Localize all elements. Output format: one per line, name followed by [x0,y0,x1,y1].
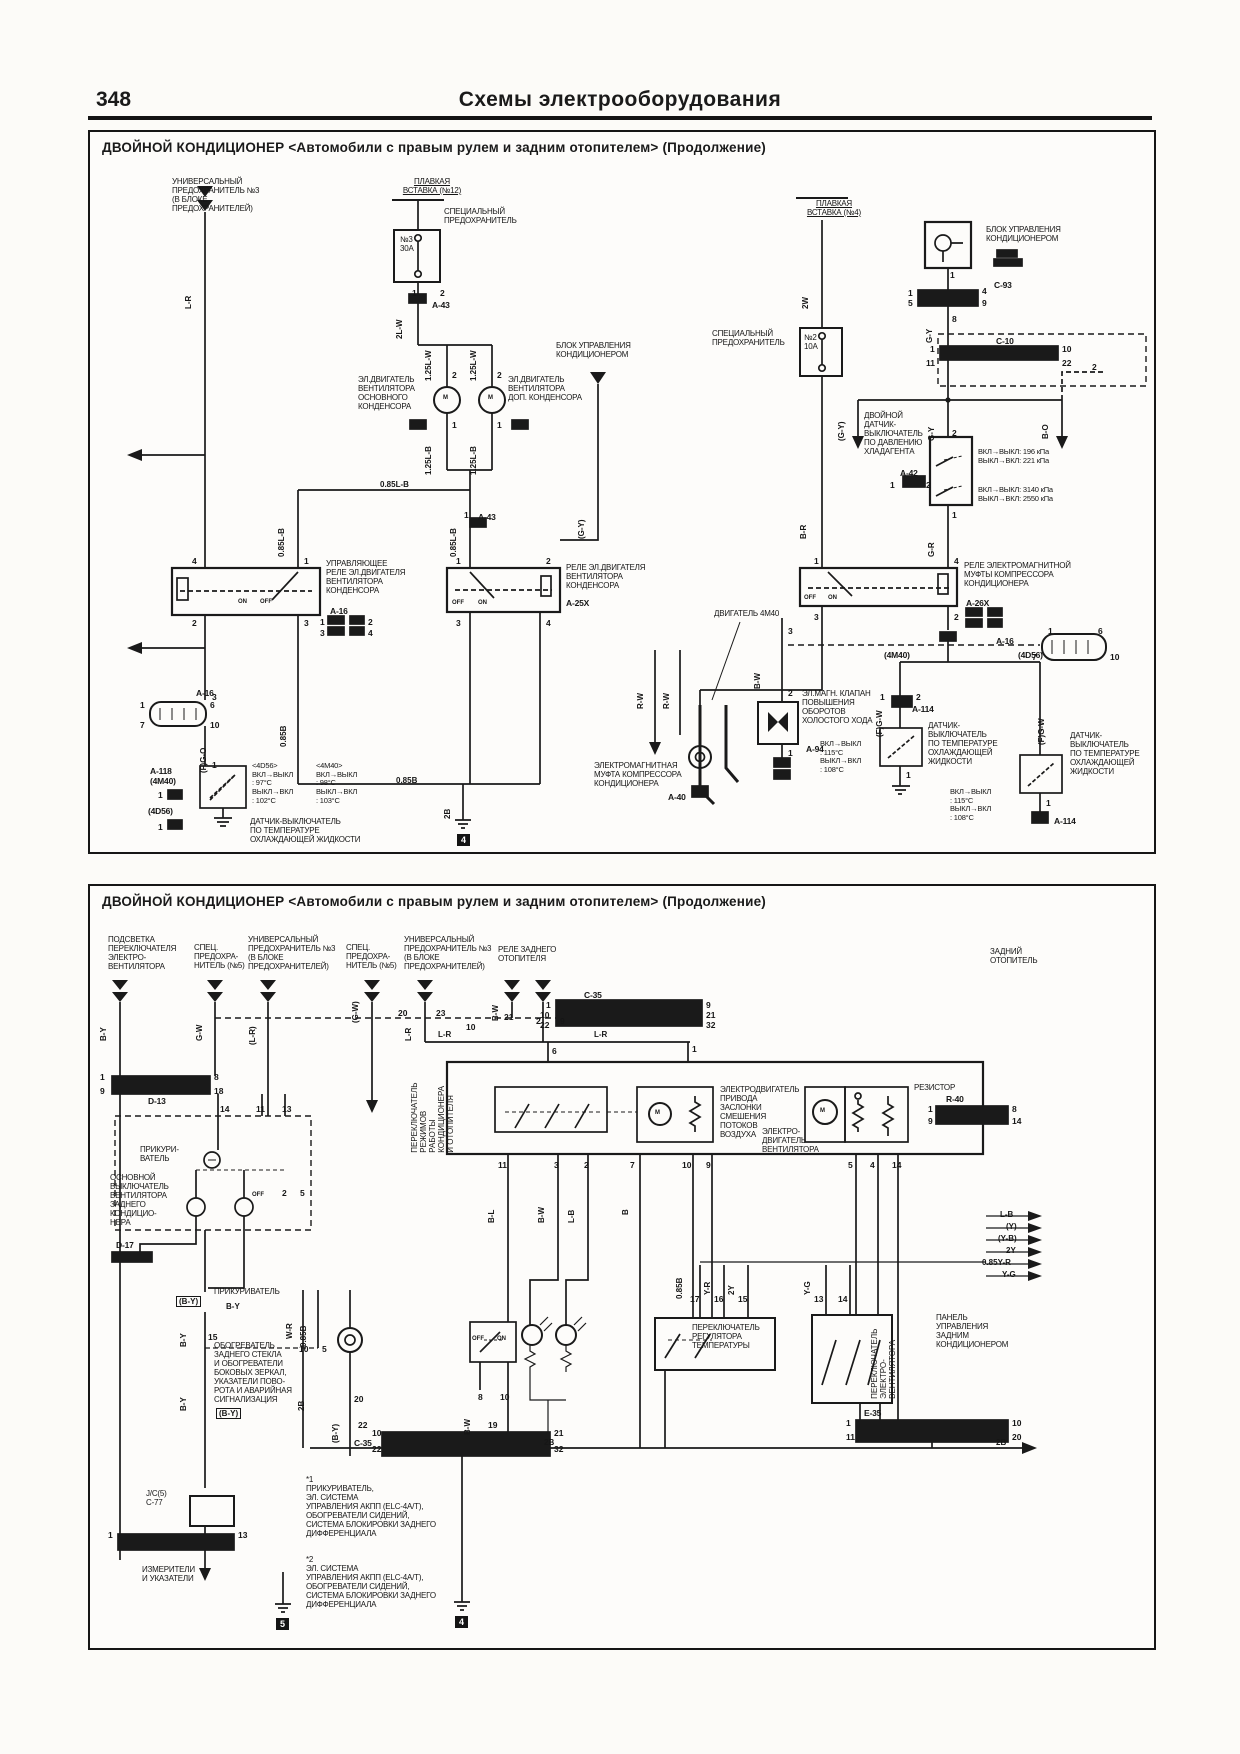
manual-page: 348 Схемы электрооборудования ДВОЙНОЙ КО… [0,0,1240,1754]
wiring-artwork [0,0,1240,1754]
panel2-wiring [112,980,1042,1612]
panel1-wiring [127,186,1146,829]
